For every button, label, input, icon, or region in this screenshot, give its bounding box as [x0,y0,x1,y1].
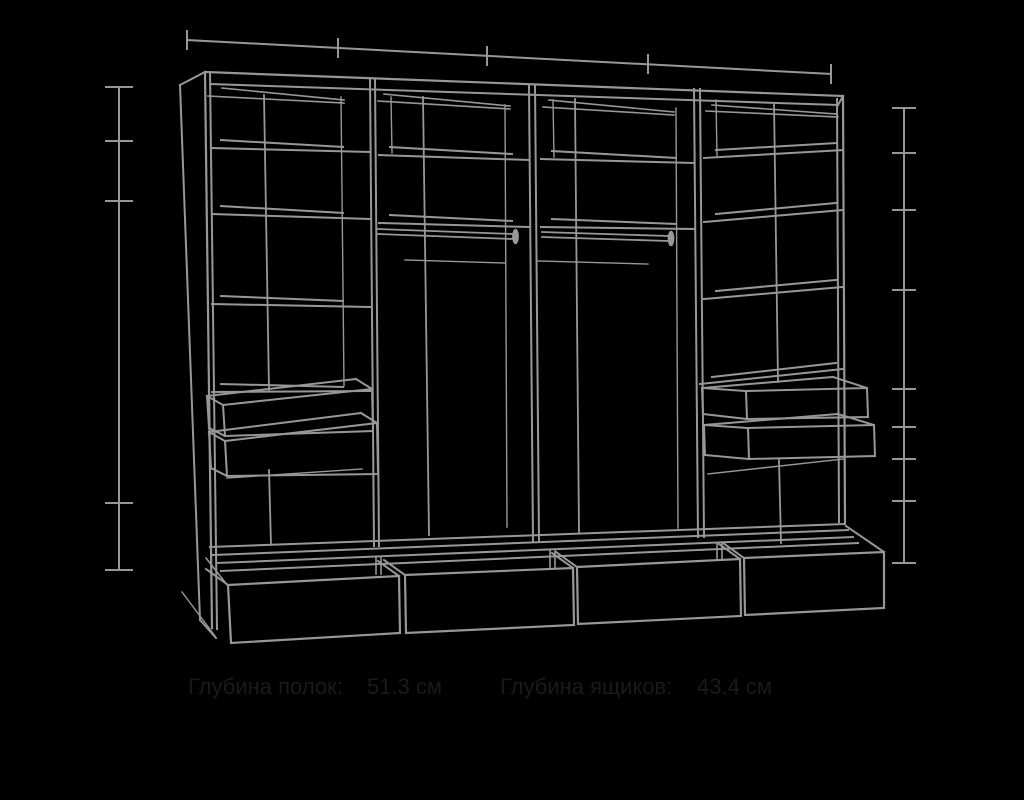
rod-end-cap [512,229,519,245]
rod-end-cap [668,231,675,247]
right-section-drawers [702,377,875,459]
wardrobe-diagram: Глубина полок: 51.3 см Глубина ящиков: 4… [0,0,1024,800]
measurement-labels: Глубина полок: 51.3 см Глубина ящиков: 4… [188,674,772,699]
right-dimension-line [893,108,915,563]
drawer-depth-label: Глубина ящиков: [500,674,672,699]
blueprint-canvas: Глубина полок: 51.3 см Глубина ящиков: 4… [0,0,1024,800]
drawer-depth-value: 43.4 см [697,674,772,699]
section-3-shelves [538,151,694,264]
hanging-rod-left [378,229,519,245]
hanging-rod-right [542,231,674,247]
shelf-depth-label: Глубина полок: [188,674,343,699]
wardrobe-carcass [180,72,858,638]
shelf-depth-value: 51.3 см [367,674,442,699]
section-2-shelves [379,147,529,263]
section-partitions [341,80,717,546]
left-dimension-line [106,87,132,570]
left-section-drawers [207,379,378,476]
